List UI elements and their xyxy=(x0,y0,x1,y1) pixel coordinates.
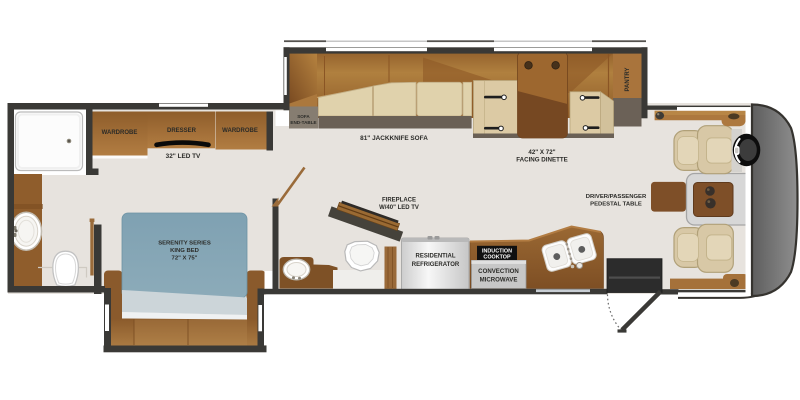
svg-text:REFRIGERATOR: REFRIGERATOR xyxy=(412,262,460,268)
svg-text:DRIVER/PASSENGER: DRIVER/PASSENGER xyxy=(586,194,647,200)
svg-text:WARDROBE: WARDROBE xyxy=(102,130,138,136)
svg-text:PANTRY: PANTRY xyxy=(625,68,631,92)
svg-text:32" LED TV: 32" LED TV xyxy=(166,153,201,160)
svg-text:81" JACKKNIFE SOFA: 81" JACKKNIFE SOFA xyxy=(360,135,428,142)
svg-text:END-TABLE: END-TABLE xyxy=(290,120,316,125)
svg-text:SOFA: SOFA xyxy=(297,114,310,119)
svg-text:MICROWAVE: MICROWAVE xyxy=(480,277,518,284)
svg-text:42" X 72": 42" X 72" xyxy=(528,149,555,156)
svg-text:KING BED: KING BED xyxy=(170,248,199,254)
svg-text:FIREPLACE: FIREPLACE xyxy=(382,198,416,204)
svg-text:PEDESTAL TABLE: PEDESTAL TABLE xyxy=(590,202,642,208)
svg-text:DRESSER: DRESSER xyxy=(167,128,197,134)
svg-text:SERENITY SERIES: SERENITY SERIES xyxy=(158,241,211,247)
svg-text:W/40" LED TV: W/40" LED TV xyxy=(379,205,419,211)
svg-text:WARDROBE: WARDROBE xyxy=(222,128,258,134)
svg-text:CONVECTION: CONVECTION xyxy=(478,268,519,275)
svg-text:RESIDENTIAL: RESIDENTIAL xyxy=(415,254,455,260)
svg-text:FACING DINETTE: FACING DINETTE xyxy=(516,156,568,163)
svg-text:COOKTOP: COOKTOP xyxy=(483,254,511,260)
svg-text:72" X 75": 72" X 75" xyxy=(172,256,198,262)
